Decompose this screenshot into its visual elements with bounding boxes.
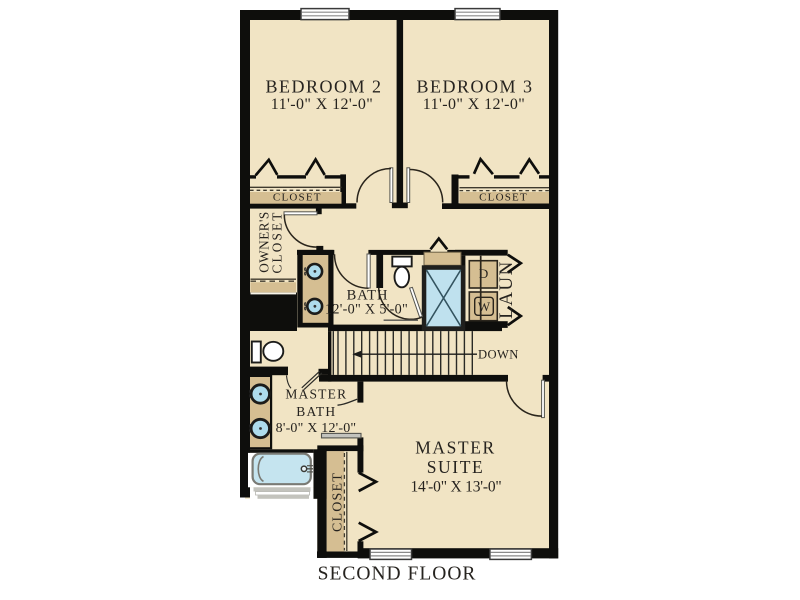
svg-text:MASTER: MASTER [415, 438, 496, 458]
svg-text:BEDROOM 2: BEDROOM 2 [265, 77, 382, 97]
svg-text:8'-0" X 12'-0": 8'-0" X 12'-0" [276, 421, 357, 436]
svg-text:CLOSET: CLOSET [331, 472, 346, 532]
svg-text:LAUN: LAUN [496, 260, 517, 319]
svg-text:CLOSET: CLOSET [270, 210, 285, 273]
svg-text:14'-0" X 13'-0": 14'-0" X 13'-0" [410, 479, 501, 496]
svg-text:MASTER: MASTER [285, 387, 347, 402]
svg-text:BATH: BATH [296, 404, 336, 419]
svg-text:BEDROOM 3: BEDROOM 3 [416, 77, 533, 97]
svg-text:11'-0" X 12'-0": 11'-0" X 12'-0" [423, 96, 525, 113]
svg-text:SECOND FLOOR: SECOND FLOOR [318, 564, 477, 585]
svg-text:SUITE: SUITE [427, 457, 485, 477]
svg-text:CLOSET: CLOSET [479, 191, 528, 203]
svg-text:CLOSET: CLOSET [273, 192, 322, 204]
svg-text:DOWN: DOWN [478, 348, 519, 362]
svg-text:D: D [479, 266, 488, 281]
svg-text:W: W [478, 299, 491, 314]
svg-text:12'-0" X 5'-0": 12'-0" X 5'-0" [325, 302, 408, 318]
svg-text:11'-0" X 12'-0": 11'-0" X 12'-0" [271, 96, 373, 113]
